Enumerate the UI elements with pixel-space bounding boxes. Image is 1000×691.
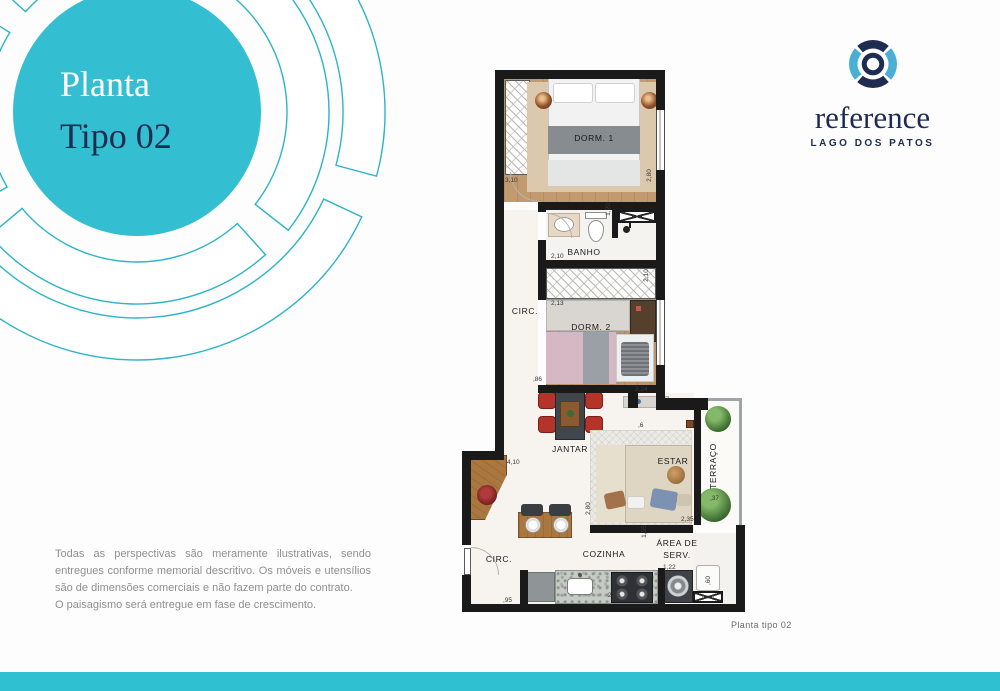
dining-centerpiece: [567, 410, 574, 417]
dorm1-bed-foot: [548, 160, 640, 186]
kitchen-faucet: [578, 573, 582, 577]
entry-door-leaf: [464, 548, 471, 575]
dim-closet-width: 2,13: [551, 300, 564, 307]
wall-closet-left: [538, 268, 546, 300]
bar-plate-1: [525, 517, 541, 533]
entry-decor-bowl: [477, 485, 497, 505]
wall-shower-divider: [612, 210, 618, 238]
room-label-circ-upper: CIRC.: [503, 306, 547, 316]
dim-counter: 2,85: [608, 592, 621, 599]
disclaimer-paragraph-2: O paisagismo será entregue em fase de cr…: [55, 597, 371, 614]
wall-left-lower-b: [462, 575, 471, 604]
dim-dorm2-depth: 2,10: [643, 269, 650, 282]
dim-washer: 1,22: [663, 564, 676, 571]
wall-nook-left: [628, 393, 638, 408]
room-label-jantar: JANTAR: [541, 444, 599, 454]
room-label-circ-lower: CIRC.: [477, 554, 521, 564]
room-label-estar: ESTAR: [643, 456, 703, 466]
brand-rings-decoration: [0, 0, 400, 362]
washing-machine-drum: [667, 575, 689, 597]
dim-estar-depth: 2,80: [585, 502, 592, 515]
service-shaft: [693, 591, 723, 603]
disclaimer: Todas as perspectivas são meramente ilus…: [55, 546, 371, 614]
disclaimer-paragraph-1: Todas as perspectivas são meramente ilus…: [55, 546, 371, 597]
room-label-area-serv-1: ÁREA DE: [645, 538, 709, 548]
room-label-cozinha: COZINHA: [570, 549, 638, 559]
sofa-pillow-white: [627, 496, 645, 509]
dim-terraco-width: ,37: [710, 495, 719, 502]
room-label-area-serv-2: SERV.: [645, 550, 709, 560]
room-label-dorm2: DORM. 2: [561, 322, 621, 332]
dorm2-cushion: [621, 342, 649, 376]
banho-toilet-tank: [585, 212, 607, 219]
dorm1-pillow-left: [553, 83, 593, 103]
lifebuoy-logo-icon: [847, 38, 899, 90]
wall-terraco-left: [694, 410, 701, 525]
dorm1-window: [656, 110, 665, 170]
circ-upper-floor: [504, 210, 538, 393]
kitchen-sink: [567, 578, 593, 595]
footer-bar: [0, 672, 1000, 691]
floor-plan: DORM. 1 BANHO CIRC. DORM. 2 JANTAR ESTAR…: [455, 60, 755, 625]
kitchen-fridge: [527, 572, 555, 602]
dim-living-width: 4,10: [507, 459, 520, 466]
terraco-plant-top: [705, 406, 731, 432]
dim-estar-width: 2,35: [681, 516, 694, 523]
wall-box: [686, 420, 694, 428]
brand-block: reference LAGO DOS PATOS: [770, 38, 975, 149]
brand-subtitle: LAGO DOS PATOS: [770, 138, 975, 149]
page-title: Planta Tipo 02: [60, 58, 172, 162]
dim-nook: 2,24: [635, 386, 648, 393]
bath-shaft: [618, 210, 656, 223]
dining-chair-3: [585, 392, 603, 409]
dim-dorm1-width: 3,10: [505, 177, 518, 184]
plan-caption: Planta tipo 02: [731, 620, 792, 630]
wall-under-dorm1: [543, 202, 656, 210]
dim-hall: ,86: [533, 376, 542, 383]
wall-bottom: [462, 604, 745, 612]
sofa-pillow-beige: [677, 494, 691, 506]
page-title-line2: Tipo 02: [60, 110, 172, 162]
dining-chair-2: [538, 416, 556, 433]
dim-shower: 1,20: [605, 203, 612, 216]
wall-nook-top: [656, 398, 708, 410]
dim-nook-small: ,6: [638, 422, 643, 429]
dorm2-bed-throw: [583, 332, 609, 384]
dorm2-window: [656, 300, 665, 365]
wall-counter-stub: [520, 570, 528, 604]
room-label-dorm1: DORM. 1: [548, 133, 640, 143]
dim-entry: ,95: [503, 597, 512, 604]
dim-tank: ,60: [705, 576, 712, 585]
dim-passage: 1,55: [641, 525, 648, 538]
bar-stool-2: [549, 504, 571, 516]
wall-right-a: [656, 70, 665, 110]
page-title-line1: Planta: [60, 58, 172, 110]
brand-name: reference: [770, 101, 975, 135]
room-label-terraco: TERRAÇO: [708, 431, 718, 501]
dorm2-closet: [546, 268, 656, 299]
terraco-railing-right: [739, 401, 742, 525]
bar-stool-1: [521, 504, 543, 516]
dorm1-lamp-left: [535, 92, 552, 109]
sofa-chaise: [596, 445, 626, 523]
wall-banho-bottom: [538, 260, 665, 268]
terraco-railing-top: [708, 398, 742, 401]
wall-left-lower-a: [462, 451, 471, 545]
wall-kitchen-divider: [658, 568, 665, 604]
dorm2-cabinet-decor: [636, 306, 641, 311]
wall-right-c: [656, 365, 665, 398]
bar-plate-2: [553, 517, 569, 533]
dining-chair-1: [538, 392, 556, 409]
dim-dorm1-depth: 2,80: [646, 169, 653, 182]
sofa-side-table: [667, 466, 685, 484]
wall-right-lower: [736, 525, 745, 612]
wall-left-upper: [495, 70, 504, 451]
wall-top: [495, 70, 665, 79]
wall-right-b: [656, 170, 665, 300]
dim-banho-width: 2,10: [551, 253, 564, 260]
page: Planta Tipo 02 reference LAGO DOS PATOS: [0, 0, 1000, 691]
wall-banho-left-a: [538, 202, 546, 212]
dorm1-pillow-right: [595, 83, 635, 103]
